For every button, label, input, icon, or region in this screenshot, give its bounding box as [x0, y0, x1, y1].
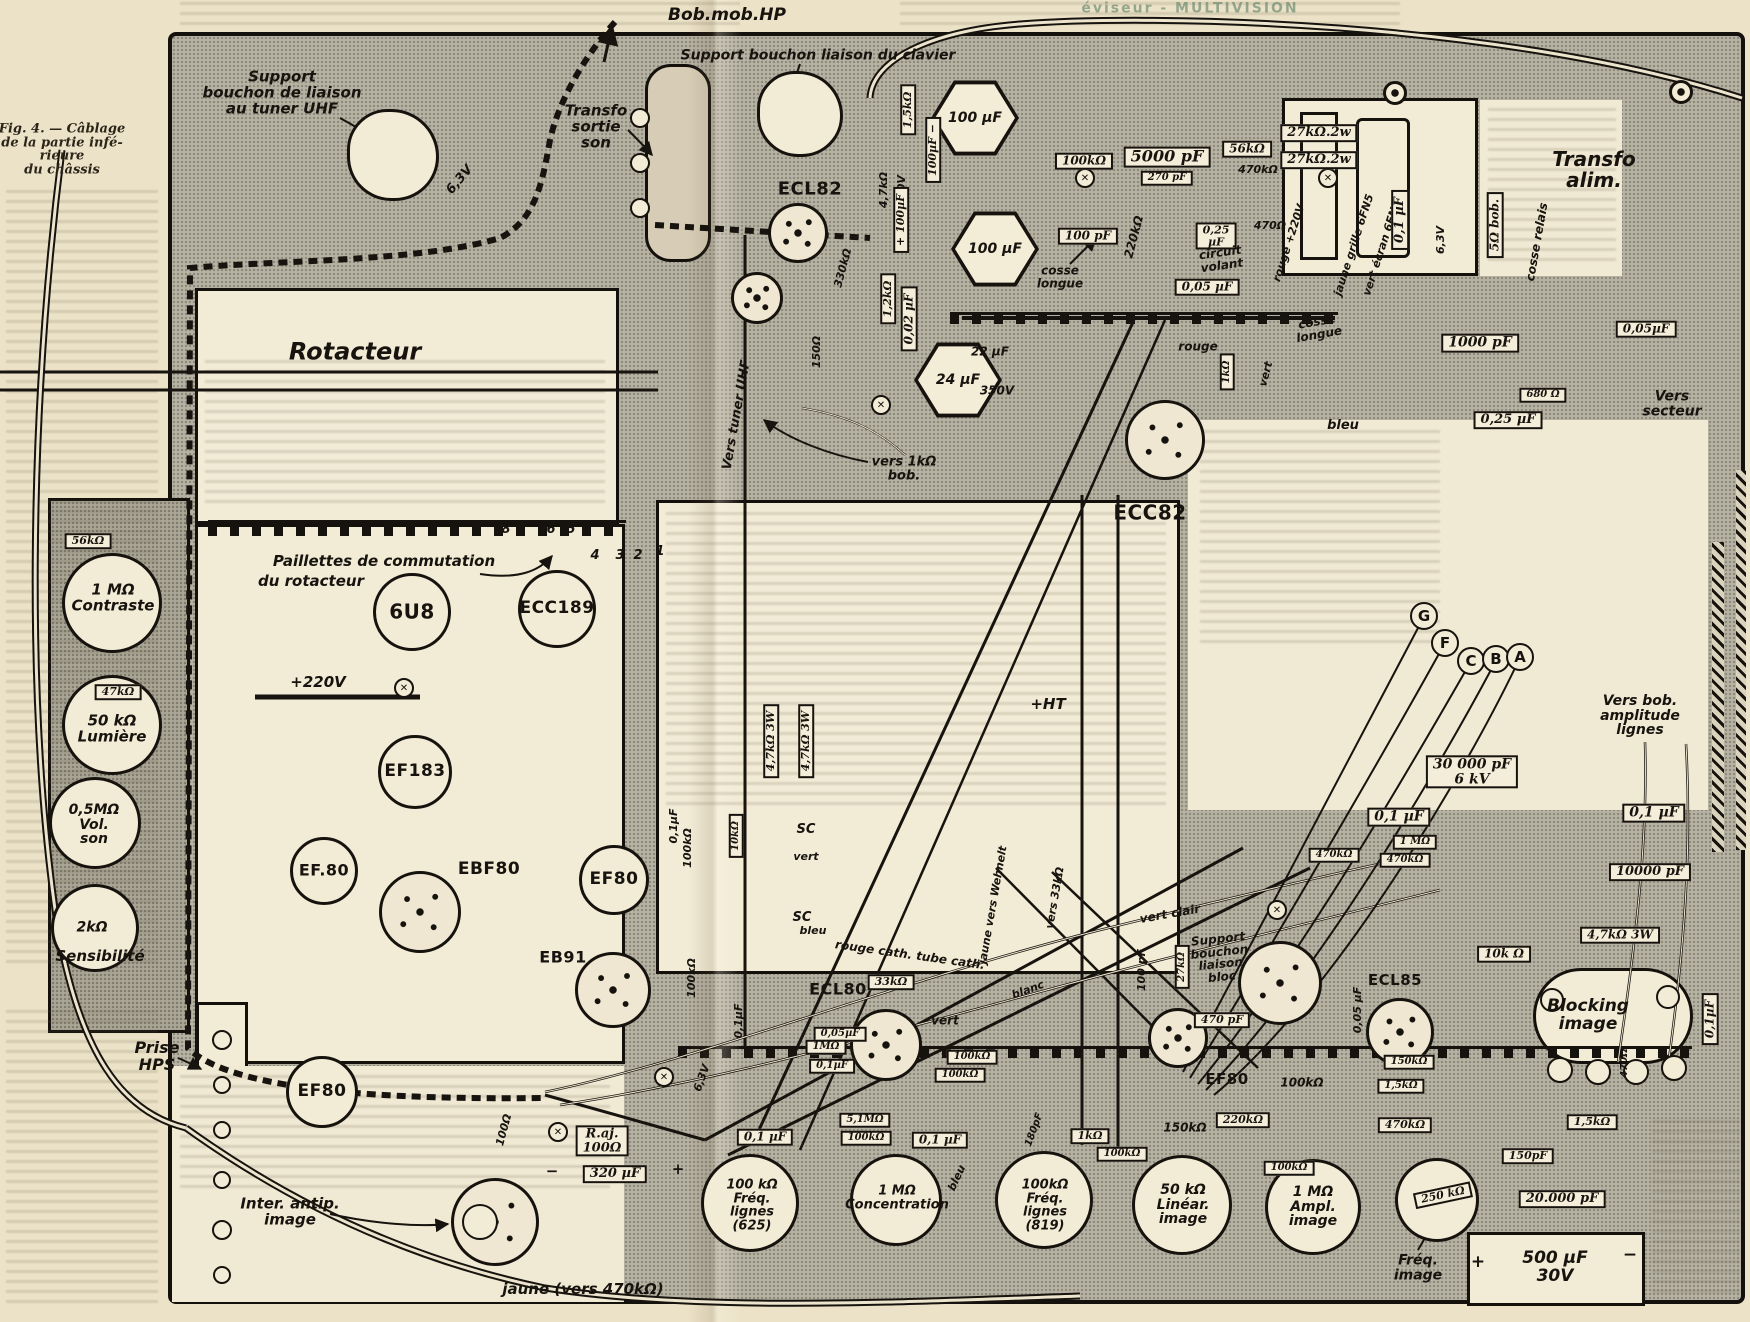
blocking-pin-4	[1661, 1055, 1687, 1081]
cap-025uf-right: 0,25 µF	[1474, 411, 1543, 429]
cap-5000pf: 5000 pF	[1124, 147, 1211, 168]
res-27k-2w-1: 27kΩ.2w	[1280, 124, 1357, 142]
res-15k-vert: 1,5kΩ	[900, 85, 916, 136]
res-47k-left: 47kΩ	[95, 684, 142, 700]
digit-6: 6	[546, 523, 555, 537]
tube-label-ecl80: ECL80	[809, 982, 867, 999]
cap-01uf-vert-2: 0,1µF	[733, 1003, 745, 1038]
chassis-hole-1	[1383, 81, 1407, 105]
label-sc-vert: SC	[797, 823, 816, 837]
label-jaune-470k: jaune (vers 470kΩ)	[502, 1282, 663, 1298]
hatch-bar-right-1	[1712, 542, 1724, 852]
antip-hub	[462, 1204, 498, 1240]
cap-1000pf: 1000 pF	[1441, 334, 1519, 353]
label-vers-secteur: Vers secteur	[1642, 389, 1701, 418]
hatch-bar-right-2	[1736, 470, 1746, 850]
res-150-vert: 150Ω	[811, 336, 823, 368]
res-47k-vert: 4,7kΩ	[878, 172, 890, 208]
res-15k-c: 1,5kΩ	[1567, 1114, 1618, 1130]
res-15k-b: 1,5kΩ	[1377, 1079, 1424, 1094]
socket-ebf80	[379, 871, 461, 953]
label-500uf-plus: +	[1471, 1254, 1485, 1272]
label-paillettes-2: du rotacteur	[258, 574, 364, 590]
bleed-text-top1	[180, 2, 740, 26]
res-56k-right: 56kΩ	[1222, 141, 1272, 158]
res-100k-e: 100kΩ	[1264, 1161, 1315, 1176]
label-support-tuner: Support bouchon de liaison au tuner UHF	[202, 69, 361, 116]
pot-label-lumiere: 50 kΩ Lumière	[78, 713, 147, 745]
pot-label-freq-625: 100 kΩ Fréq. lignes (625)	[726, 1179, 777, 1234]
cap-100uf-can-2: + 100µF	[893, 187, 909, 253]
label-prise-hps: Prise HPS	[135, 1040, 180, 1074]
res-470-vert: 470Ω	[1620, 1048, 1631, 1077]
screw-6: ✕	[654, 1067, 674, 1087]
terminal-letter-G: G	[1410, 602, 1438, 630]
socket-ecl82-a	[768, 203, 828, 263]
res-470-it: 470Ω	[1254, 220, 1286, 232]
label-220v: +220V	[290, 675, 346, 691]
pot-label-ampl-image: 1 MΩ Ampl. image	[1289, 1185, 1337, 1229]
pot-label-vol-son: 0,5MΩ Vol. son	[69, 803, 120, 847]
res-470k-it: 470kΩ	[1238, 164, 1278, 176]
label-circuit-volant: circuit volant	[1198, 244, 1244, 275]
res-10k-b: 10k Ω	[1477, 946, 1531, 963]
tube-label-ecl85: ECL85	[1368, 973, 1422, 989]
label-transfo-sortie-son: Transfo sortie son	[565, 103, 628, 150]
res-470k-d: 470kΩ	[1380, 853, 1431, 868]
digit-8: 8	[501, 523, 510, 537]
pot-label-concentration: 1 MΩ Concentration	[845, 1184, 949, 1211]
label-support-bloc: Support bouchon liaison bloc	[1189, 930, 1252, 986]
res-12k-vert: 1,2kΩ	[880, 274, 896, 325]
res-47k3w-vert-1: 4,7kΩ 3W	[763, 704, 779, 778]
hps-lug-1	[212, 1030, 232, 1050]
hps-lug-6	[213, 1266, 231, 1284]
tube-label-6u8: 6U8	[389, 602, 435, 623]
cap-01uf-vert-1: 0,1µF	[668, 808, 680, 843]
res-470k-b: 470kΩ	[1378, 1117, 1432, 1133]
page-header: éviseur - MULTIVISION	[1081, 2, 1298, 17]
res-150k-b: 150kΩ	[1384, 1055, 1435, 1070]
cap-01uf-ecl80: 0,1µF	[809, 1059, 855, 1074]
res-100k-c: 100kΩ	[841, 1131, 892, 1146]
cap-01uf-talim: 0,1 µF	[1391, 190, 1409, 250]
label-22uf: 22 µF	[971, 346, 1009, 359]
tube-label-ecc189: ECC189	[519, 600, 594, 618]
terminal-strip-bottom-right	[1196, 1046, 1692, 1058]
res-100k-it: 100kΩ	[1280, 1077, 1323, 1090]
label-320uf-plus: +	[672, 1162, 685, 1178]
label-freq-image: Fréq. image	[1394, 1253, 1442, 1282]
terminal-letter-F: F	[1431, 629, 1459, 657]
figure-caption: Fig. 4. — Câblage de la partie infé- rie…	[0, 123, 125, 178]
tube-label-ef80-right: EF80	[1205, 1072, 1248, 1088]
blocking-pin-2	[1585, 1059, 1611, 1085]
terminal-strip-top	[950, 312, 1338, 324]
hps-lug-2	[213, 1076, 231, 1094]
pot-label-sensibilite: Sensibilité	[55, 949, 144, 965]
res-150k-it: 150kΩ	[1163, 1122, 1206, 1135]
cap-100pf-top: 100 pF	[1058, 228, 1118, 245]
res-100k-a: 100kΩ	[947, 1050, 998, 1065]
digit-2: 2	[633, 549, 642, 563]
cap-005uf-top: 0,05 µF	[1175, 279, 1240, 296]
res-100k-top: 100kΩ	[1055, 153, 1113, 170]
res-1m-b: 1 MΩ	[1393, 835, 1437, 850]
cap-150pf: 150pF	[1502, 1148, 1554, 1164]
cap-01uf-c: 0,1 µF	[737, 1129, 793, 1146]
res-220k-b: 220kΩ	[1216, 1112, 1270, 1128]
label-transfo-alim: Transfo alim.	[1552, 149, 1635, 191]
cap-470pf: 470 pF	[1194, 1012, 1250, 1028]
label-5ohm-bob: 5Ω bob.	[1487, 192, 1504, 258]
label-sc-bleu: SC	[793, 911, 812, 925]
blocking-eye-2	[1656, 985, 1680, 1009]
cap-100pf-vert: 100 pF	[1136, 949, 1148, 991]
digit-3: 3	[615, 549, 624, 563]
screw-5: ✕	[548, 1122, 568, 1142]
digit-4: 4	[590, 549, 599, 563]
socket-tuner-uhf	[347, 109, 439, 201]
res-1k-b: 1kΩ	[1070, 1128, 1109, 1144]
bleed-text-right	[1200, 430, 1440, 650]
tube-label-eb91: EB91	[539, 950, 586, 967]
res-47k3w-b: 4,7kΩ 3W	[1580, 927, 1660, 944]
label-rotacteur: Rotacteur	[289, 339, 421, 364]
terminal-letter-A: A	[1506, 643, 1534, 671]
wire-rouge: rouge	[1178, 341, 1217, 354]
label-500uf-minus: −	[1623, 1247, 1637, 1265]
label-support-clavier: Support bouchon liaison du clavier	[681, 49, 956, 64]
res-470k-c: 470kΩ	[1309, 848, 1360, 863]
cap-01uf-e: 0,1 µF	[1367, 808, 1430, 827]
tube-label-ebf80: EBF80	[458, 861, 520, 879]
bleed-text-bottom-right	[1652, 1120, 1740, 1300]
res-56k-left: 56kΩ	[65, 533, 112, 549]
tube-label-ef80-center: EF80	[590, 871, 639, 889]
cap-100uf-can-1: 100µF −	[925, 117, 941, 183]
label-bob-mob-hp: Bob.mob.HP	[668, 7, 786, 25]
bleed-text-rotacteur	[205, 360, 605, 510]
label-350v: 350V	[980, 385, 1014, 398]
res-33k: 33kΩ	[868, 974, 915, 990]
terminal-letter-C: C	[1457, 647, 1485, 675]
paillettes-row	[208, 520, 626, 536]
pot-label-contraste: 1 MΩ Contraste	[72, 582, 155, 614]
socket-clavier	[757, 71, 843, 157]
cap-10000pf: 10000 pF	[1609, 863, 1691, 881]
sortie-son-lug-2	[630, 153, 650, 173]
screw-4: ✕	[1318, 168, 1338, 188]
cap-500uf: 500 µF 30V	[1522, 1250, 1588, 1286]
screw-2: ✕	[871, 395, 891, 415]
label-blocking-image: Blocking image	[1547, 998, 1629, 1034]
blocking-pin-1	[1547, 1057, 1573, 1083]
res-raj-100: R.aj. 100Ω	[576, 1125, 629, 1156]
screw-7: ✕	[1267, 900, 1287, 920]
cap-01uf-f: 0,1 µF	[1622, 804, 1685, 823]
socket-ecl80	[850, 1009, 922, 1081]
res-100k-b: 100kΩ	[935, 1068, 986, 1083]
label-paillettes-1: Paillettes de commutation	[273, 554, 495, 570]
hps-lug-5	[212, 1220, 232, 1240]
label-vers-bob-amplitude: Vers bob. amplitude lignes	[1585, 694, 1695, 738]
tube-label-ef80-left: EF.80	[299, 863, 349, 880]
socket-ecl82-b	[731, 272, 783, 324]
cap-30000pf: 30 000 pF 6 kV	[1426, 755, 1518, 788]
screw-1: ✕	[394, 678, 414, 698]
sortie-son-lug-1	[630, 108, 650, 128]
socket-bloc	[1238, 941, 1322, 1025]
bleed-text-center	[666, 512, 1166, 812]
chassis-hole-2	[1669, 80, 1693, 104]
schematic-page: GFCBA✕✕✕✕✕✕✕Fig. 4. — Câblage de la part…	[0, 0, 1750, 1322]
res-1m-ecl80: 1MΩ	[806, 1040, 847, 1055]
cap-01uf-vert-right: 0,1µF	[1702, 993, 1719, 1045]
res-27k-2w-2: 27kΩ.2w	[1280, 151, 1357, 169]
label-63v-talim: 6,3V	[1435, 226, 1447, 254]
res-680: 680 Ω	[1519, 388, 1566, 403]
res-1k-vert: 1kΩ	[1220, 354, 1235, 391]
cap-005uf-vert: 0,05 µF	[1352, 987, 1364, 1034]
label-inter-antip: Inter. antip. image	[240, 1196, 339, 1228]
cap-005uf-right: 0,05µF	[1616, 321, 1677, 338]
res-27k-vert: 27kΩ	[1175, 945, 1190, 989]
tube-label-ecc82: ECC82	[1113, 503, 1186, 524]
cap-002uf-vert: 0,02 µF	[901, 287, 918, 352]
screw-3: ✕	[1075, 168, 1095, 188]
cap-320uf: 320 µF	[583, 1165, 647, 1183]
label-ht: +HT	[1030, 697, 1065, 713]
res-100k-d: 100kΩ	[1097, 1147, 1148, 1162]
label-vers-1k-bob: vers 1kΩ bob.	[872, 455, 937, 482]
res-100k-vert-1: 100kΩ	[682, 828, 694, 868]
res-100k-vert-2: 100kΩ	[686, 958, 698, 998]
tube-label-ecl82: ECL82	[778, 181, 843, 200]
wire-vert-sc: vert	[793, 851, 818, 863]
cap-270pf: 270 pF	[1141, 171, 1193, 186]
hps-lug-4	[213, 1171, 231, 1189]
pot-label-freq-819: 100kΩ Fréq. lignes (819)	[1022, 1179, 1069, 1234]
tube-label-ef80-bottomleft: EF80	[298, 1083, 347, 1101]
digit-5: 5	[566, 523, 575, 537]
res-51m: 5,1MΩ	[839, 1113, 890, 1128]
hps-lug-3	[213, 1121, 231, 1139]
label-320uf-minus: −	[546, 1164, 559, 1180]
pot-label-linear-image: 50 kΩ Linéar. image	[1157, 1183, 1210, 1227]
sortie-son-lug-3	[630, 198, 650, 218]
res-10k-vert: 10kΩ	[729, 814, 744, 858]
res-47k3w-vert-2: 4,7kΩ 3W	[798, 704, 814, 778]
cap-01uf-d: 0,1 µF	[912, 1132, 968, 1149]
socket-ecc82	[1125, 400, 1205, 480]
wire-bleu-right: bleu	[1327, 419, 1359, 433]
wire-bleu-sc: bleu	[800, 925, 827, 937]
label-cosse-longue-1: cosse longue	[1037, 264, 1083, 289]
pot-label-sensibilite-value: 2kΩ	[77, 921, 108, 936]
terminal-strip-bottom-center	[678, 1046, 1190, 1058]
cap-20000pf: 20.000 pF	[1519, 1190, 1606, 1208]
tube-label-ef183: EF183	[384, 763, 445, 781]
digit-1: 1	[655, 545, 664, 559]
wire-vert-2: vert	[931, 1015, 959, 1028]
